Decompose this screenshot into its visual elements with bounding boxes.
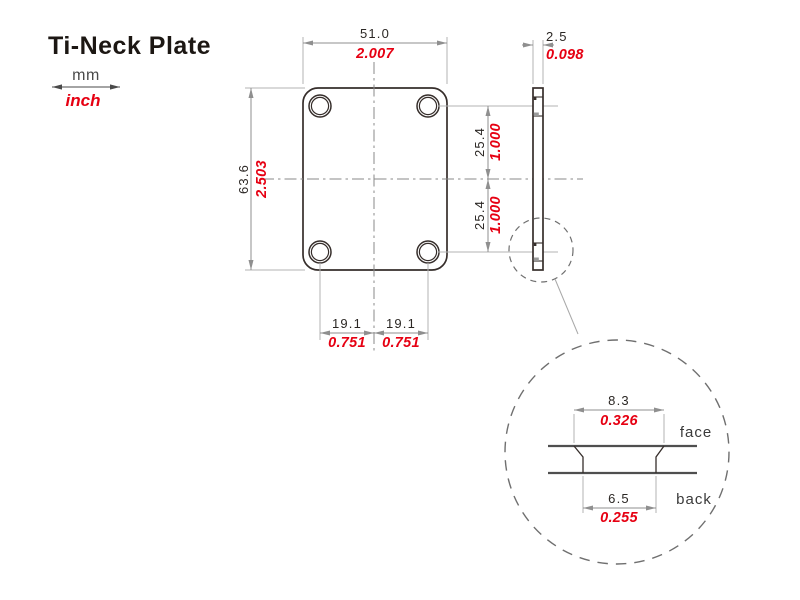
dimension-hole-back: 6.5 0.255 [583, 476, 656, 526]
hole-back-mm: 6.5 [608, 491, 630, 506]
hole-spacing-v-upper-mm: 25.4 [472, 127, 487, 157]
unit-mm-label: mm [72, 67, 100, 84]
hole-spacing-h-left-inch: 0.751 [328, 335, 366, 351]
countersink-face-inch: 0.326 [600, 413, 638, 429]
plate-width-inch: 2.007 [355, 46, 394, 62]
countersink-profile-right [656, 446, 664, 473]
back-label: back [676, 491, 712, 508]
thickness-inch: 0.098 [546, 47, 584, 63]
hole-spacing-h-right-mm: 19.1 [386, 316, 416, 331]
dimension-countersink-face: 8.3 0.326 [574, 393, 664, 443]
hole-shadow-bottom [534, 258, 539, 262]
unit-legend: mm inch [52, 67, 120, 110]
dimension-thickness: 2.5 0.098 [522, 29, 584, 84]
drawing-canvas: Ti-Neck Plate mm inch [0, 0, 800, 600]
hole-spacing-v-lower-mm: 25.4 [472, 200, 487, 230]
countersink-mark-top [534, 97, 537, 100]
mounting-hole-bottom-left [309, 241, 331, 263]
detail-view-circle [505, 340, 729, 564]
technical-drawing-page: Ti-Neck Plate mm inch [0, 0, 800, 600]
mounting-hole-top-right [417, 95, 439, 117]
countersink-mark-bottom [534, 243, 537, 246]
hole-spacing-v-lower-inch: 1.000 [488, 196, 504, 234]
mounting-hole-top-left [309, 95, 331, 117]
thickness-mm: 2.5 [546, 29, 568, 44]
dimension-plate-width: 51.0 2.007 [303, 26, 447, 84]
countersink-profile-left [574, 446, 583, 473]
hole-back-inch: 0.255 [600, 510, 638, 526]
mounting-hole-bottom-right [417, 241, 439, 263]
hole-spacing-h-right-inch: 0.751 [382, 335, 420, 351]
unit-inch-label: inch [66, 91, 101, 110]
face-label: face [680, 424, 712, 441]
plate-width-mm: 51.0 [360, 26, 390, 41]
detail-leader-line [555, 279, 578, 334]
side-view [533, 88, 543, 270]
countersink-cross-section: 8.3 0.326 6.5 0.255 face back [548, 393, 712, 526]
hole-shadow-top [534, 113, 539, 117]
plate-height-inch: 2.503 [254, 160, 270, 199]
plate-height-mm: 63.6 [236, 164, 251, 194]
page-title: Ti-Neck Plate [48, 32, 211, 60]
countersink-face-mm: 8.3 [608, 393, 630, 408]
hole-spacing-v-upper-inch: 1.000 [488, 123, 504, 161]
hole-spacing-h-left-mm: 19.1 [332, 316, 362, 331]
